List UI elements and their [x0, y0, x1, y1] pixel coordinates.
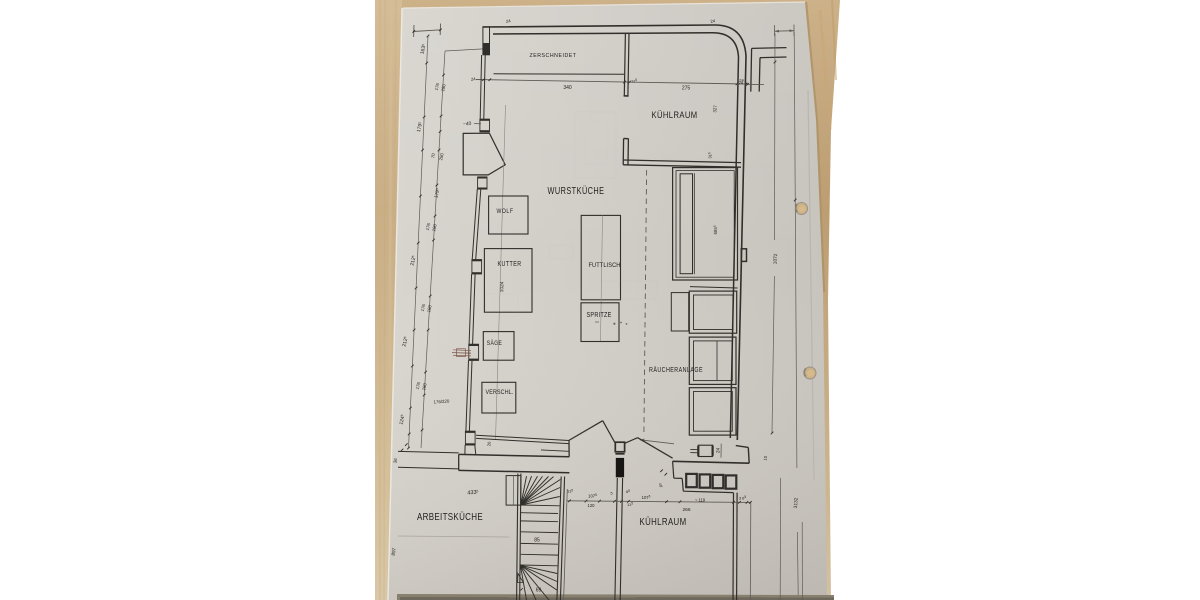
svg-text:KÜHLRAUM: KÜHLRAUM	[652, 110, 698, 121]
svg-text:1072: 1072	[773, 253, 780, 264]
svg-text:1024: 1024	[499, 281, 505, 292]
svg-text:275: 275	[682, 85, 691, 91]
svg-text:KÜHLRAUM: KÜHLRAUM	[640, 516, 687, 528]
svg-text:SPRITZE: SPRITZE	[587, 312, 612, 319]
svg-text:SÄGE: SÄGE	[487, 339, 503, 347]
svg-text:ARBEITSKÜCHE: ARBEITSKÜCHE	[417, 511, 483, 523]
svg-text:120: 120	[588, 503, 596, 508]
svg-text:340: 340	[563, 85, 572, 91]
svg-text:5: 5	[610, 492, 612, 496]
svg-text:~40: ~40	[463, 121, 472, 128]
svg-text:327: 327	[712, 105, 718, 113]
svg-text:FUTTLISCH: FUTTLISCH	[589, 262, 621, 269]
svg-text:WOLF: WOLF	[497, 208, 514, 215]
svg-text:~ 119: ~ 119	[695, 498, 706, 503]
svg-text:RÄUCHERANLAGE: RÄUCHERANLAGE	[649, 366, 703, 374]
svg-text:69: 69	[536, 588, 542, 594]
svg-text:ZERSCHNEIDET: ZERSCHNEIDET	[530, 53, 577, 59]
svg-text:3132: 3132	[793, 497, 800, 508]
svg-text:24: 24	[715, 447, 721, 453]
svg-text:VERSCHL.: VERSCHL.	[486, 389, 514, 396]
svg-text:266: 266	[682, 507, 690, 513]
svg-text:85: 85	[534, 538, 540, 544]
svg-text:KUTTER: KUTTER	[498, 259, 522, 268]
svg-text:WURSTKÜCHE: WURSTKÜCHE	[548, 185, 605, 197]
